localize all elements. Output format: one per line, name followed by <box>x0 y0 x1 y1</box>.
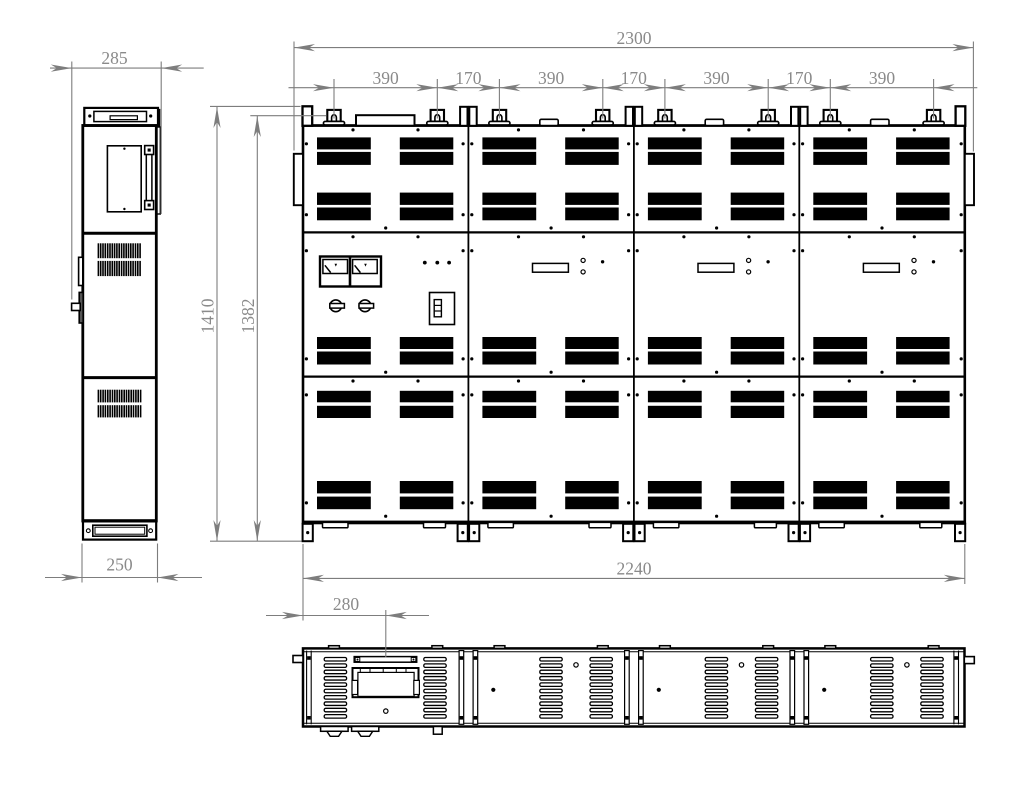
svg-text:285: 285 <box>101 48 128 68</box>
svg-text:390: 390 <box>538 68 565 88</box>
svg-text:2240: 2240 <box>617 559 652 579</box>
svg-text:390: 390 <box>869 68 896 88</box>
svg-text:2300: 2300 <box>617 28 652 48</box>
svg-text:170: 170 <box>621 68 648 88</box>
svg-text:1382: 1382 <box>238 299 258 334</box>
svg-text:170: 170 <box>786 68 813 88</box>
svg-text:390: 390 <box>703 68 730 88</box>
svg-text:280: 280 <box>333 594 360 614</box>
svg-text:390: 390 <box>372 68 399 88</box>
svg-text:250: 250 <box>106 555 133 575</box>
svg-text:170: 170 <box>455 68 482 88</box>
svg-text:1410: 1410 <box>198 298 218 333</box>
